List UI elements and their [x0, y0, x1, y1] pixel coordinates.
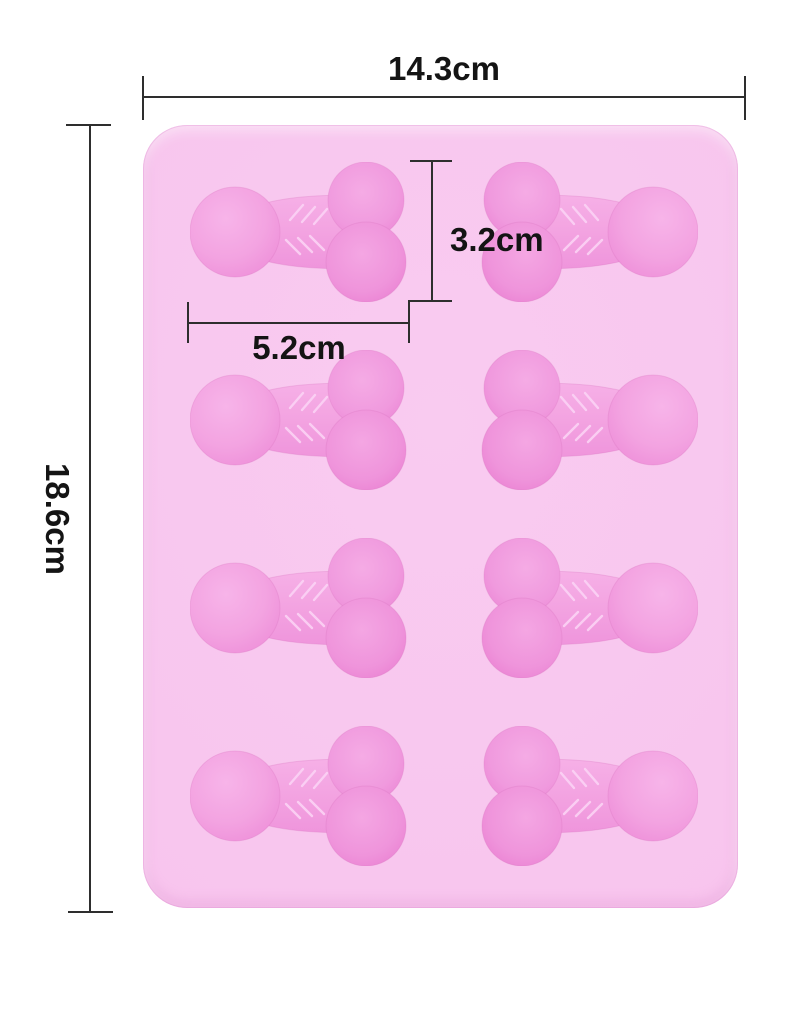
- cavity-height-dimension-label: 3.2cm: [450, 221, 544, 259]
- cavity-height-dimension-tick-top: [410, 160, 452, 162]
- cavity-width-dimension-tick-left: [187, 302, 189, 343]
- width-dimension-label: 14.3cm: [143, 50, 745, 88]
- height-dimension-line: [89, 125, 91, 913]
- product-dimension-image: 14.3cm 18.6cm 3.2cm 5.2cm: [0, 0, 800, 1016]
- height-dimension-label: 18.6cm: [38, 463, 76, 575]
- width-dimension-line: [143, 96, 745, 98]
- width-dimension-tick-right: [744, 76, 746, 120]
- mold-cavity: [480, 350, 698, 490]
- width-dimension-tick-left: [142, 76, 144, 120]
- cavity-width-dimension-line: [188, 322, 410, 324]
- mold-cavity: [480, 538, 698, 678]
- mold-cavity: [190, 538, 408, 678]
- cavity-height-dimension-line: [431, 161, 433, 302]
- mold-cavity: [190, 162, 408, 302]
- mold-cavity: [190, 726, 408, 866]
- mold-cavity: [480, 726, 698, 866]
- mold-cavity: [190, 350, 408, 490]
- cavity-height-dimension-tick-bottom: [408, 300, 452, 302]
- height-dimension-tick-top: [66, 124, 111, 126]
- cavity-width-dimension-label: 5.2cm: [188, 329, 410, 367]
- height-dimension-tick-bottom: [68, 911, 113, 913]
- cavity-width-dimension-tick-right: [408, 302, 410, 343]
- mold-tray: [143, 125, 738, 908]
